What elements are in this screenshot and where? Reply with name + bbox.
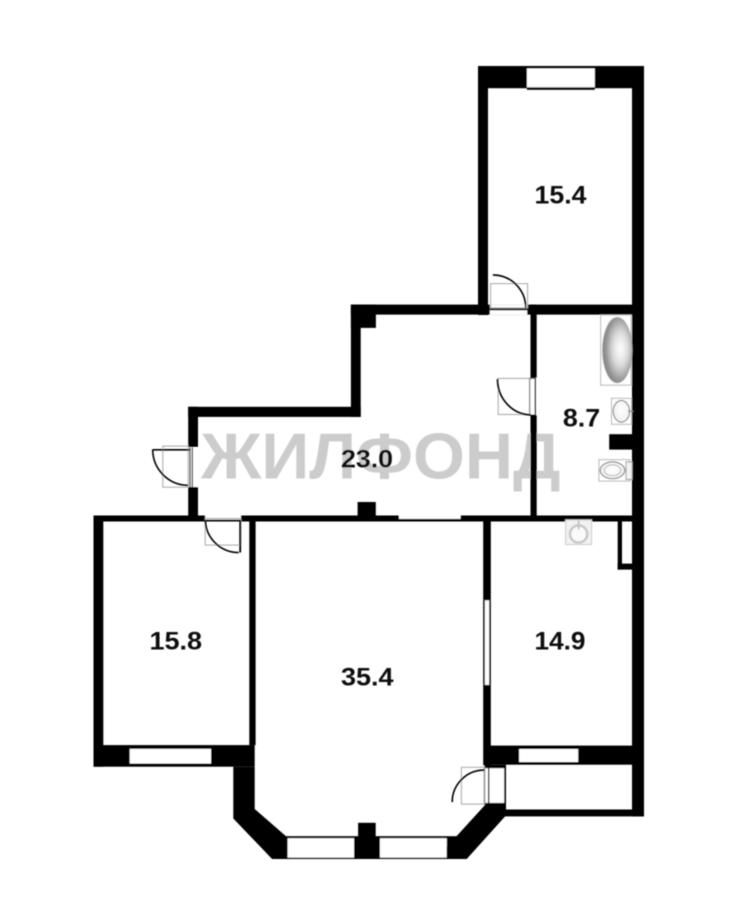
svg-text:35.4: 35.4 — [341, 664, 394, 692]
svg-text:23.0: 23.0 — [341, 446, 393, 474]
svg-text:14.9: 14.9 — [535, 627, 586, 655]
svg-text:15.8: 15.8 — [150, 628, 203, 656]
svg-text:15.4: 15.4 — [535, 182, 587, 210]
svg-text:8.7: 8.7 — [563, 405, 600, 433]
